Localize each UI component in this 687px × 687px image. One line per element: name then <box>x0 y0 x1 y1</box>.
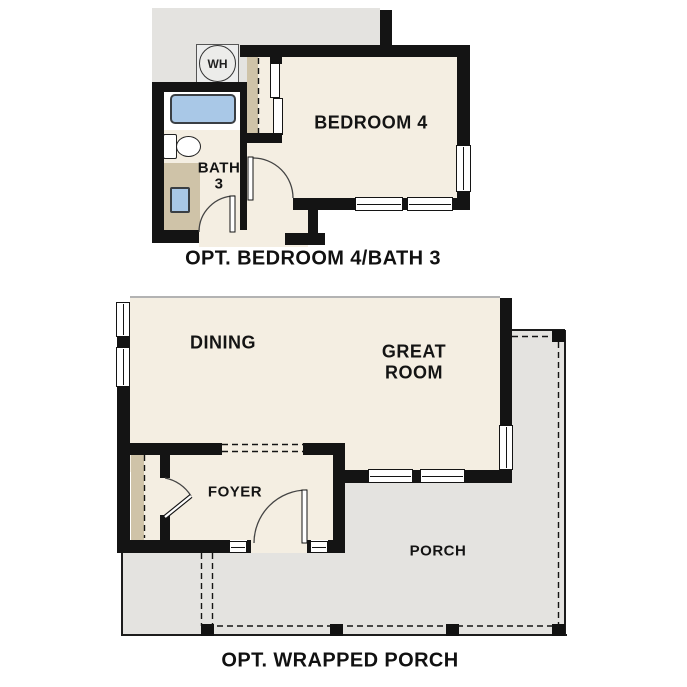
dining-label: DINING <box>190 333 256 354</box>
wall-segment <box>117 540 230 553</box>
cased-opening <box>222 443 303 455</box>
porch-outline <box>121 634 567 636</box>
wall-segment <box>247 540 251 553</box>
great-room-label-line2: ROOM <box>385 363 443 384</box>
sidelite-window <box>310 541 328 553</box>
closet-shelf <box>131 453 144 540</box>
floorplan-canvas: WH BEDROOM 4 BATH 3 OPT. <box>0 0 687 687</box>
wall-segment <box>160 515 170 540</box>
porch-post <box>330 624 343 636</box>
wall-segment <box>117 387 130 553</box>
porch-post <box>552 330 565 342</box>
wall-segment <box>333 470 368 483</box>
window <box>116 302 130 337</box>
window <box>116 347 130 387</box>
porch-post <box>446 624 459 636</box>
porch-outline <box>121 553 123 636</box>
window <box>499 425 513 470</box>
plan-caption: OPT. WRAPPED PORCH <box>221 650 458 673</box>
window <box>420 469 465 483</box>
wall-segment <box>328 540 345 553</box>
great-room-label-line1: GREAT <box>382 342 446 363</box>
porch-post <box>552 624 565 636</box>
porch-fill <box>122 553 565 635</box>
window <box>368 469 413 483</box>
foyer-label: FOYER <box>208 484 262 501</box>
sidelite-window <box>229 541 247 553</box>
porch-post <box>201 624 214 636</box>
wall-segment <box>500 298 512 425</box>
wall-segment <box>333 443 345 553</box>
wall-segment <box>117 337 130 347</box>
front-door-opening <box>250 540 308 553</box>
plan-cut-edge <box>130 296 500 298</box>
wall-segment <box>413 470 420 483</box>
closet-floor <box>144 453 160 540</box>
wall-segment <box>160 453 170 478</box>
plan-wrapped-porch: DINING GREAT ROOM FOYER PORCH OPT. WRAPP… <box>0 0 687 687</box>
porch-outline <box>564 330 566 636</box>
wall-segment <box>500 470 512 483</box>
porch-label: PORCH <box>410 543 467 560</box>
